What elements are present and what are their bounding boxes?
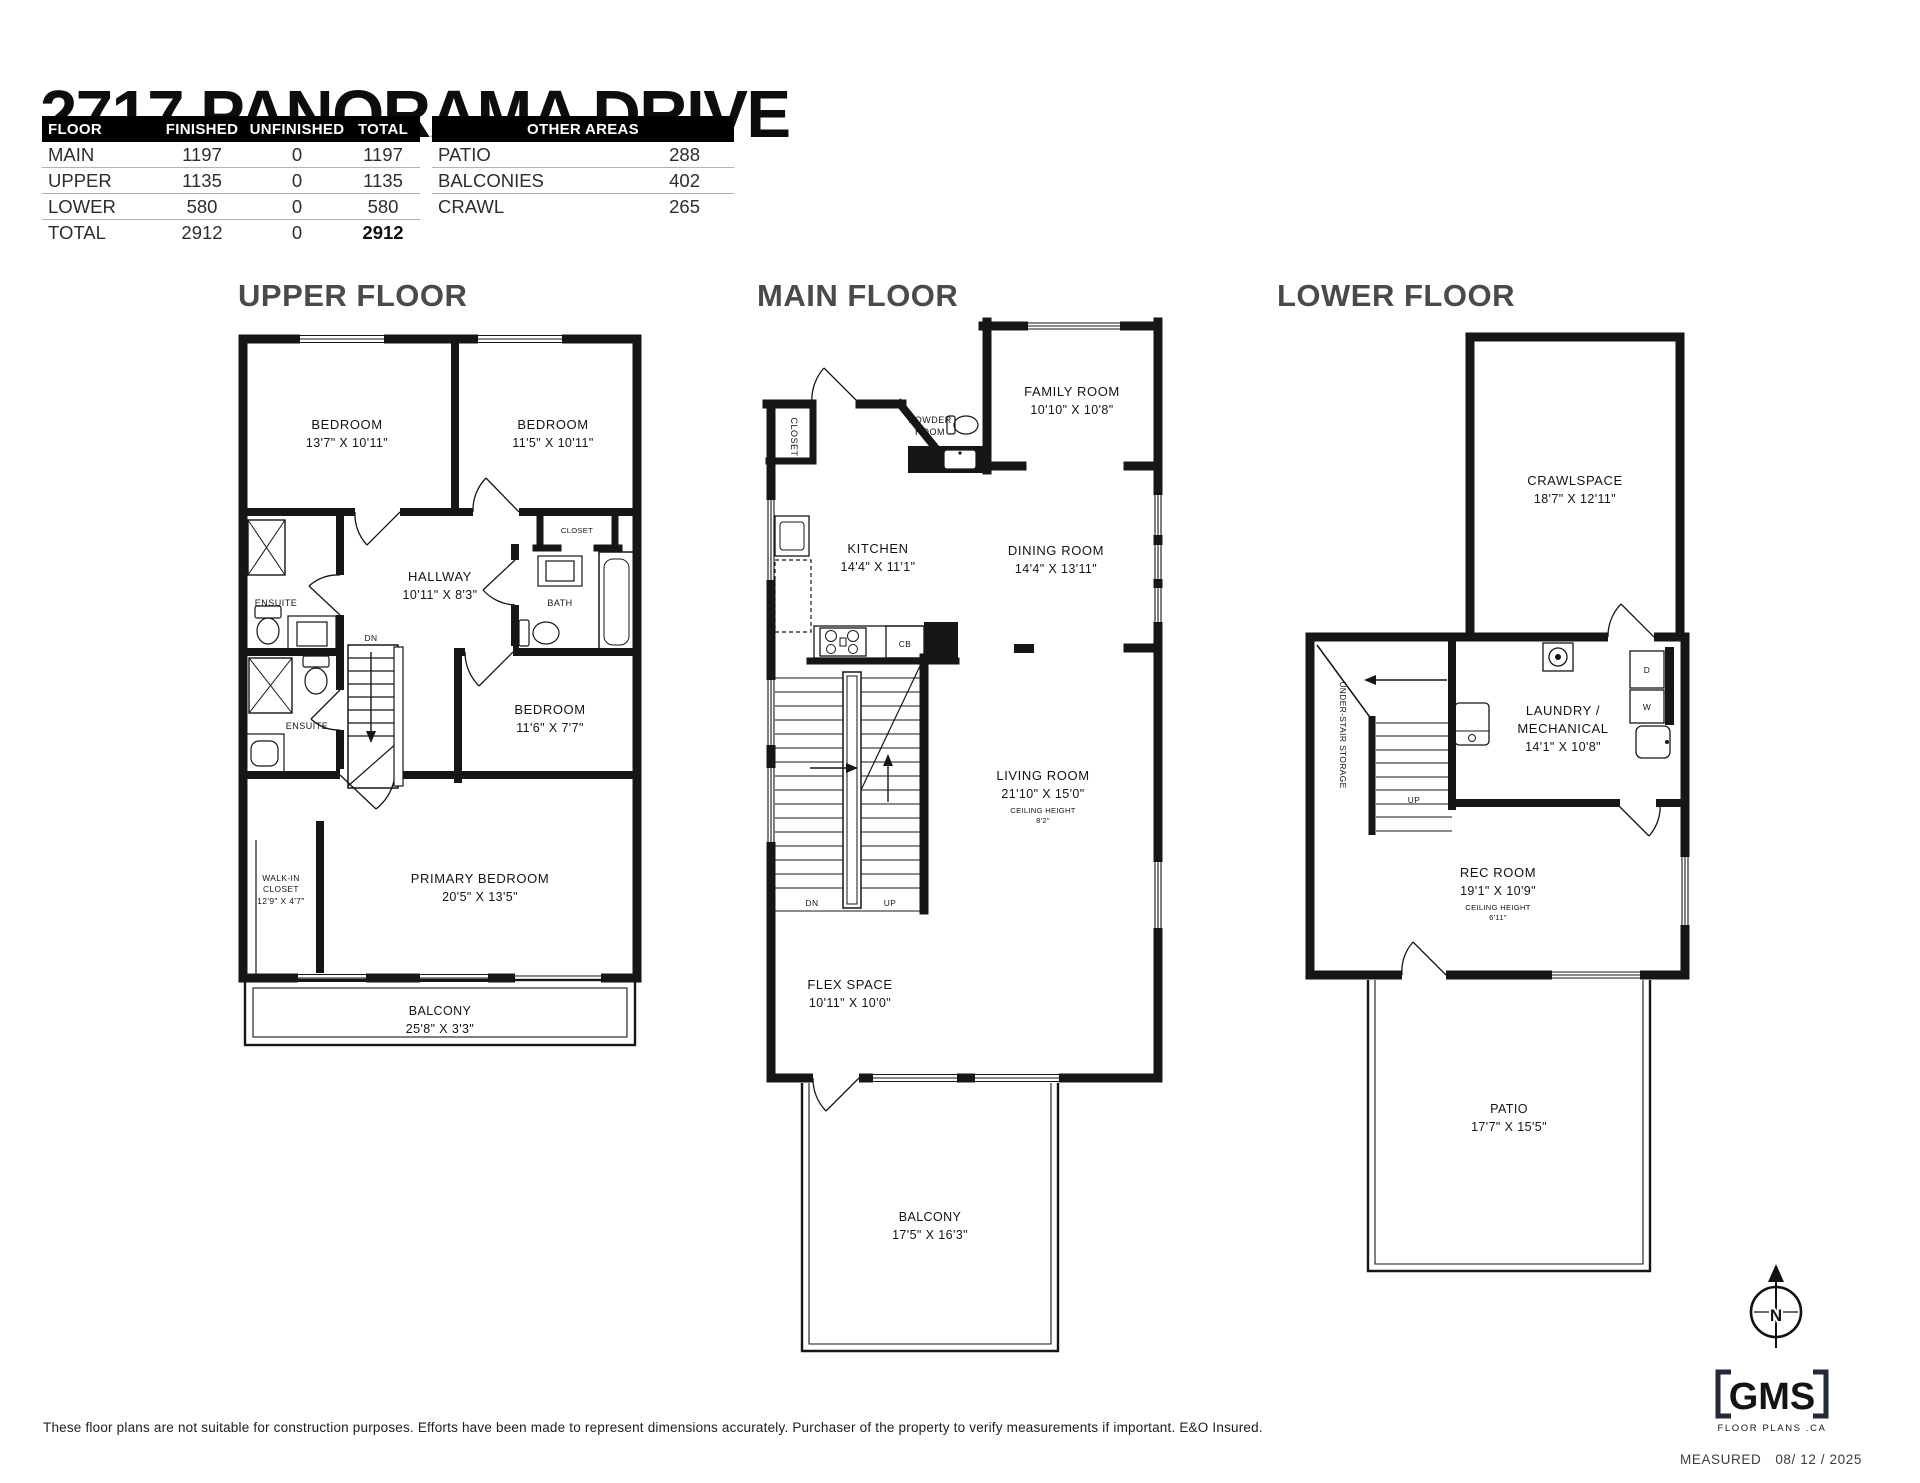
room-dims: 19'1" X 10'9" <box>1460 884 1536 898</box>
sink-icon <box>288 616 336 652</box>
upper-floor-title: UPPER FLOOR <box>238 278 467 314</box>
room-dims: 10'10" X 10'8" <box>1030 403 1113 417</box>
cell-finished: 1135 <box>156 168 248 194</box>
main-floor-plan: FAMILY ROOM 10'10" X 10'8" POWDER ROOM C… <box>755 315 1175 1365</box>
stair-label: UP <box>1408 795 1420 805</box>
floor-plan-page: { "colors":{"wall":"#161616","floor_titl… <box>0 0 1920 1483</box>
room-label: FLEX SPACE <box>807 977 892 992</box>
logo-text: GMS <box>1729 1376 1816 1418</box>
cell-unfinished: 0 <box>248 194 346 220</box>
cell-finished: 2912 <box>156 220 248 246</box>
room-label: LIVING ROOM <box>996 768 1089 783</box>
shower-icon <box>248 520 285 575</box>
bath-fixtures <box>519 552 634 652</box>
cell-floor: TOTAL <box>42 220 156 246</box>
table-row: LOWER 580 0 580 <box>42 194 420 220</box>
stair-label: DN <box>365 633 378 643</box>
measured-value: 08/ 12 / 2025 <box>1775 1452 1862 1467</box>
col-floor: FLOOR <box>42 116 156 142</box>
room-dims: 14'4" X 11'1" <box>841 560 916 574</box>
room-label: PATIO <box>1490 1102 1528 1116</box>
room-label: DINING ROOM <box>1008 543 1104 558</box>
col-unfinished: UNFINISHED <box>248 116 346 142</box>
room-dims: 20'5" X 13'5" <box>442 890 518 904</box>
toilet-icon <box>303 656 329 694</box>
cell-floor: LOWER <box>42 194 156 220</box>
compass-north-label: N <box>1770 1306 1782 1325</box>
room-label: CLOSET <box>561 526 593 535</box>
room-dims: 14'4" X 13'11" <box>1015 562 1097 576</box>
room-dims: 12'9" X 4'7" <box>257 896 304 906</box>
room-dims: 11'6" X 7'7" <box>516 721 584 735</box>
lower-floor-title: LOWER FLOOR <box>1277 278 1515 314</box>
room-label: FAMILY ROOM <box>1024 384 1120 399</box>
table-header-row: FLOOR FINISHED UNFINISHED TOTAL <box>42 116 420 142</box>
ceiling-label: CEILING HEIGHT <box>1010 806 1075 815</box>
table-row: BALCONIES 402 <box>432 168 734 194</box>
room-dims: 18'7" X 12'11" <box>1534 492 1616 506</box>
table-row: MAIN 1197 0 1197 <box>42 142 420 168</box>
dryer-label: D <box>1644 665 1650 675</box>
door-openings <box>813 1072 859 1084</box>
table-row: UPPER 1135 0 1135 <box>42 168 420 194</box>
cell-total: 580 <box>346 194 420 220</box>
cell-value: 288 <box>583 142 734 168</box>
windows <box>1552 857 1690 980</box>
cell-total: 1135 <box>346 168 420 194</box>
room-label: BEDROOM <box>311 417 382 432</box>
room-label: BEDROOM <box>517 417 588 432</box>
cell-label: BALCONIES <box>432 168 583 194</box>
room-label: ROOM <box>915 427 945 437</box>
door-openings <box>334 506 521 781</box>
col-other-areas: OTHER AREAS <box>432 116 734 142</box>
cell-finished: 1197 <box>156 142 248 168</box>
room-label: UNDER-STAIR STORAGE <box>1338 681 1348 788</box>
room-dims: 25'8" X 3'3" <box>406 1022 475 1036</box>
room-label: PRIMARY BEDROOM <box>411 871 550 886</box>
cabinet-label: CB <box>899 639 911 649</box>
room-label: WALK-IN <box>262 873 299 883</box>
table-row-total: TOTAL 2912 0 2912 <box>42 220 420 246</box>
cell-value: 402 <box>583 168 734 194</box>
room-label: KITCHEN <box>847 541 908 556</box>
disclaimer-text: These floor plans are not suitable for c… <box>43 1420 1263 1435</box>
kitchen-fixtures <box>775 516 958 658</box>
room-label: BALCONY <box>899 1210 962 1224</box>
cell-unfinished: 0 <box>248 220 346 246</box>
staircase-lower <box>1317 645 1452 835</box>
cell-total: 2912 <box>346 220 420 246</box>
lower-floor-plan: CRAWLSPACE 18'7" X 12'11" UNDER-STAIR ST… <box>1295 320 1710 1290</box>
toilet-icon <box>255 606 281 644</box>
room-dims: 10'11" X 10'0" <box>809 996 891 1010</box>
room-label: CLOSET <box>789 417 799 456</box>
windows <box>767 322 1163 1084</box>
cell-value: 265 <box>583 194 734 220</box>
room-dims: 21'10" X 15'0" <box>1001 787 1084 801</box>
room-label: CRAWLSPACE <box>1527 473 1623 488</box>
cell-floor: UPPER <box>42 168 156 194</box>
room-label: POWDER <box>908 415 952 425</box>
stair-label: DN <box>806 898 819 908</box>
cell-unfinished: 0 <box>248 168 346 194</box>
main-floor-title: MAIN FLOOR <box>757 278 958 314</box>
ceiling-value: 6'11" <box>1489 913 1507 922</box>
main-walls <box>767 322 1158 1078</box>
stair-label: UP <box>884 898 896 908</box>
measured-date: MEASURED 08/ 12 / 2025 <box>1680 1452 1862 1467</box>
wall-stub <box>1014 644 1034 653</box>
ceiling-label: CEILING HEIGHT <box>1465 903 1530 912</box>
shower-icon <box>249 658 292 713</box>
floor-area-table: FLOOR FINISHED UNFINISHED TOTAL MAIN 119… <box>42 116 420 245</box>
ceiling-value: 8'2" <box>1036 816 1050 825</box>
logo-subtext: FLOOR PLANS .CA <box>1718 1423 1827 1434</box>
col-finished: FINISHED <box>156 116 248 142</box>
room-dims: 13'7" X 10'11" <box>306 436 388 450</box>
col-total: TOTAL <box>346 116 420 142</box>
cell-finished: 580 <box>156 194 248 220</box>
room-label: LAUNDRY / <box>1526 703 1600 718</box>
room-label: BATH <box>547 598 572 608</box>
room-label: ENSUITE <box>255 598 298 608</box>
sink-icon <box>246 734 284 772</box>
compass-icon: N <box>1738 1262 1818 1357</box>
room-label: MECHANICAL <box>1517 721 1608 736</box>
room-label: HALLWAY <box>408 569 472 584</box>
room-dims: 10'11" X 8'3" <box>403 588 478 602</box>
room-label: REC ROOM <box>1460 865 1536 880</box>
table-row: CRAWL 265 <box>432 194 734 220</box>
upper-floor-plan: BEDROOM 13'7" X 10'11" BEDROOM 11'5" X 1… <box>230 320 650 1060</box>
room-label: BEDROOM <box>514 702 585 717</box>
room-label: BALCONY <box>409 1004 472 1018</box>
other-areas-table: OTHER AREAS PATIO 288 BALCONIES 402 CRAW… <box>432 116 734 219</box>
cell-unfinished: 0 <box>248 142 346 168</box>
room-dims: 17'5" X 16'3" <box>892 1228 968 1242</box>
room-label: CLOSET <box>263 884 299 894</box>
table-row: PATIO 288 <box>432 142 734 168</box>
table-header-row: OTHER AREAS <box>432 116 734 142</box>
cell-total: 1197 <box>346 142 420 168</box>
room-label: ENSUITE <box>286 721 329 731</box>
washer-label: W <box>1643 702 1651 712</box>
staircase-main <box>771 666 924 911</box>
room-dims: 14'1" X 10'8" <box>1525 740 1601 754</box>
room-dims: 11'5" X 10'11" <box>512 436 593 450</box>
cell-label: CRAWL <box>432 194 583 220</box>
cell-label: PATIO <box>432 142 583 168</box>
cell-floor: MAIN <box>42 142 156 168</box>
room-dims: 17'7" X 15'5" <box>1471 1120 1547 1134</box>
measured-label: MEASURED <box>1680 1452 1761 1467</box>
gms-logo: GMS FLOOR PLANS .CA <box>1700 1360 1850 1440</box>
staircase-upper <box>348 645 403 788</box>
